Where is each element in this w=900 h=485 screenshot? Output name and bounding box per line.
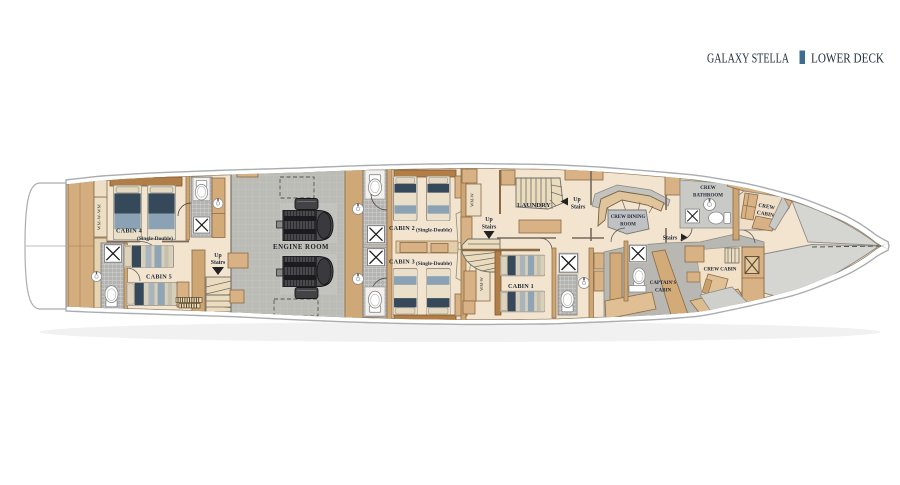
svg-text:BATHROOM: BATHROOM bbox=[693, 194, 723, 199]
svg-text:Stairs: Stairs bbox=[482, 225, 497, 231]
svg-text:CABIN 2: CABIN 2 bbox=[389, 225, 415, 232]
svg-text:Stairs: Stairs bbox=[663, 236, 678, 242]
svg-text:WM-W: WM-W bbox=[479, 276, 484, 291]
svg-text:Up: Up bbox=[485, 217, 492, 223]
svg-text:(Single-Double): (Single-Double) bbox=[416, 260, 452, 267]
svg-text:Up: Up bbox=[573, 197, 580, 203]
svg-text:CABIN 1: CABIN 1 bbox=[508, 283, 534, 290]
svg-text:CABIN 5: CABIN 5 bbox=[146, 274, 172, 281]
svg-text:ROOM: ROOM bbox=[620, 223, 636, 228]
svg-text:CABIN: CABIN bbox=[655, 289, 672, 294]
svg-text:CREW CABIN: CREW CABIN bbox=[704, 268, 737, 273]
svg-text:Stairs: Stairs bbox=[211, 260, 226, 266]
svg-text:GALAXY STELLA: GALAXY STELLA bbox=[707, 51, 789, 66]
svg-text:CAPTAIN'S: CAPTAIN'S bbox=[650, 281, 677, 286]
svg-text:CREW DINING: CREW DINING bbox=[611, 215, 646, 220]
svg-text:LAUNDRY: LAUNDRY bbox=[517, 202, 551, 209]
svg-text:WM-W-WM: WM-W-WM bbox=[97, 204, 102, 230]
svg-text:CABIN 3: CABIN 3 bbox=[389, 259, 415, 266]
svg-text:ENGINE ROOM: ENGINE ROOM bbox=[273, 244, 329, 251]
svg-text:CREW: CREW bbox=[700, 186, 716, 191]
svg-text:WM-W: WM-W bbox=[470, 192, 475, 207]
svg-text:(Single-Double): (Single-Double) bbox=[416, 227, 452, 234]
svg-text:LOWER DECK: LOWER DECK bbox=[811, 51, 884, 66]
svg-text:Stairs: Stairs bbox=[571, 205, 586, 211]
svg-text:Up: Up bbox=[214, 253, 221, 259]
svg-text:CABIN 4: CABIN 4 bbox=[116, 228, 142, 235]
